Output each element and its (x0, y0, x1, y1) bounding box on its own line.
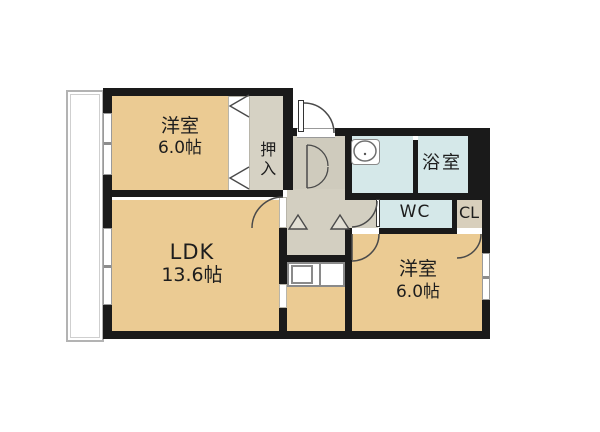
wall-kitchen-counter-back (279, 255, 345, 262)
wall-room1-ldk (103, 190, 283, 197)
room2-size-label: 6.0帖 (396, 283, 440, 303)
wall-under-washroom (345, 193, 490, 200)
room2-name-label: 洋室 (399, 259, 437, 281)
wall-wc-cl (452, 198, 457, 228)
washbasin-vanity (351, 139, 380, 165)
window-mullion (104, 142, 111, 145)
wall-room2-left (345, 228, 352, 331)
floor-plan: 洋室 6.0帖 押入 浴室 WC CL LDK 13.6帖 洋室 6.0帖 (0, 0, 600, 432)
kitchen-pass-opening (279, 284, 287, 308)
wc-label: WC (400, 203, 431, 223)
wall-washroom-bath (413, 140, 418, 193)
balcony-rail (70, 94, 100, 338)
window-mullion (483, 276, 489, 279)
wc-passage-floor (345, 198, 378, 228)
ldk-door-opening (279, 197, 287, 228)
room2-door-opening (352, 228, 379, 234)
oshiire-door-track (228, 96, 250, 193)
cl-door-opening (457, 228, 482, 234)
window-room1 (103, 113, 112, 175)
wall-bottom-outer (103, 331, 490, 339)
oshiire-label: 押入 (257, 141, 275, 179)
ldk-name-label: LDK (170, 240, 215, 264)
entrance-door-leaf (298, 100, 304, 132)
room1-size-label: 6.0帖 (158, 139, 202, 159)
window-ldk (103, 228, 112, 305)
wall-oshiire-right (283, 88, 293, 190)
hallway-floor (287, 189, 345, 255)
kitchen-floor (287, 287, 345, 331)
wall-top-left-block (103, 88, 293, 96)
counter-divider (319, 263, 321, 286)
ldk-size-label: 13.6帖 (161, 265, 222, 287)
room1-name-label: 洋室 (161, 116, 199, 138)
window-mullion (104, 265, 111, 268)
wall-bath-right-mass (468, 128, 482, 198)
bathroom-label: 浴室 (422, 154, 462, 175)
wall-hall-ldk-b (279, 308, 287, 331)
genkan-floor (293, 136, 345, 189)
kitchen-sink (291, 265, 313, 284)
window-room2 (482, 253, 490, 300)
wc-door-leaf (376, 199, 380, 227)
cl-label: CL (459, 204, 479, 222)
balcony (66, 90, 104, 342)
